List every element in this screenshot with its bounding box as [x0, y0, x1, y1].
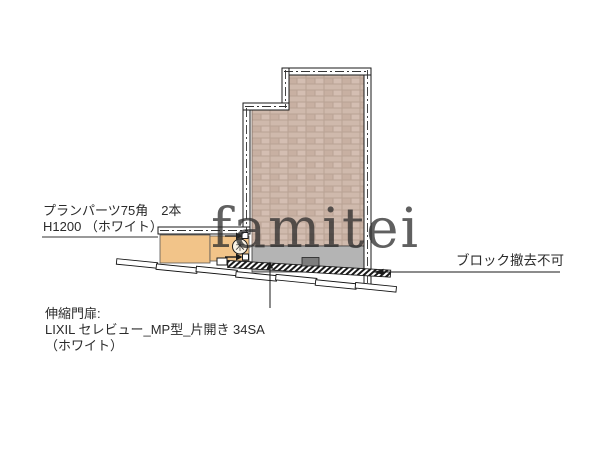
block-note-label: ブロック撤去不可	[456, 252, 564, 268]
gate-label-line2: LIXIL セレビュー_MP型_片開き 34SA	[45, 322, 265, 337]
site-plan-drawing: 木 famitei	[0, 0, 600, 450]
site-plan-screenshot: 木 famitei	[0, 0, 600, 450]
gate-label-line3: （ホワイト）	[45, 338, 123, 353]
fence-panel-left	[160, 235, 210, 263]
watermark-text: famitei	[211, 196, 420, 260]
plan-parts-label-line1: プランパーツ75角 2本	[43, 203, 181, 218]
gate-label-line1: 伸縮門扉:	[45, 306, 101, 321]
plan-parts-label-line2: H1200 （ホワイト）	[43, 219, 163, 234]
